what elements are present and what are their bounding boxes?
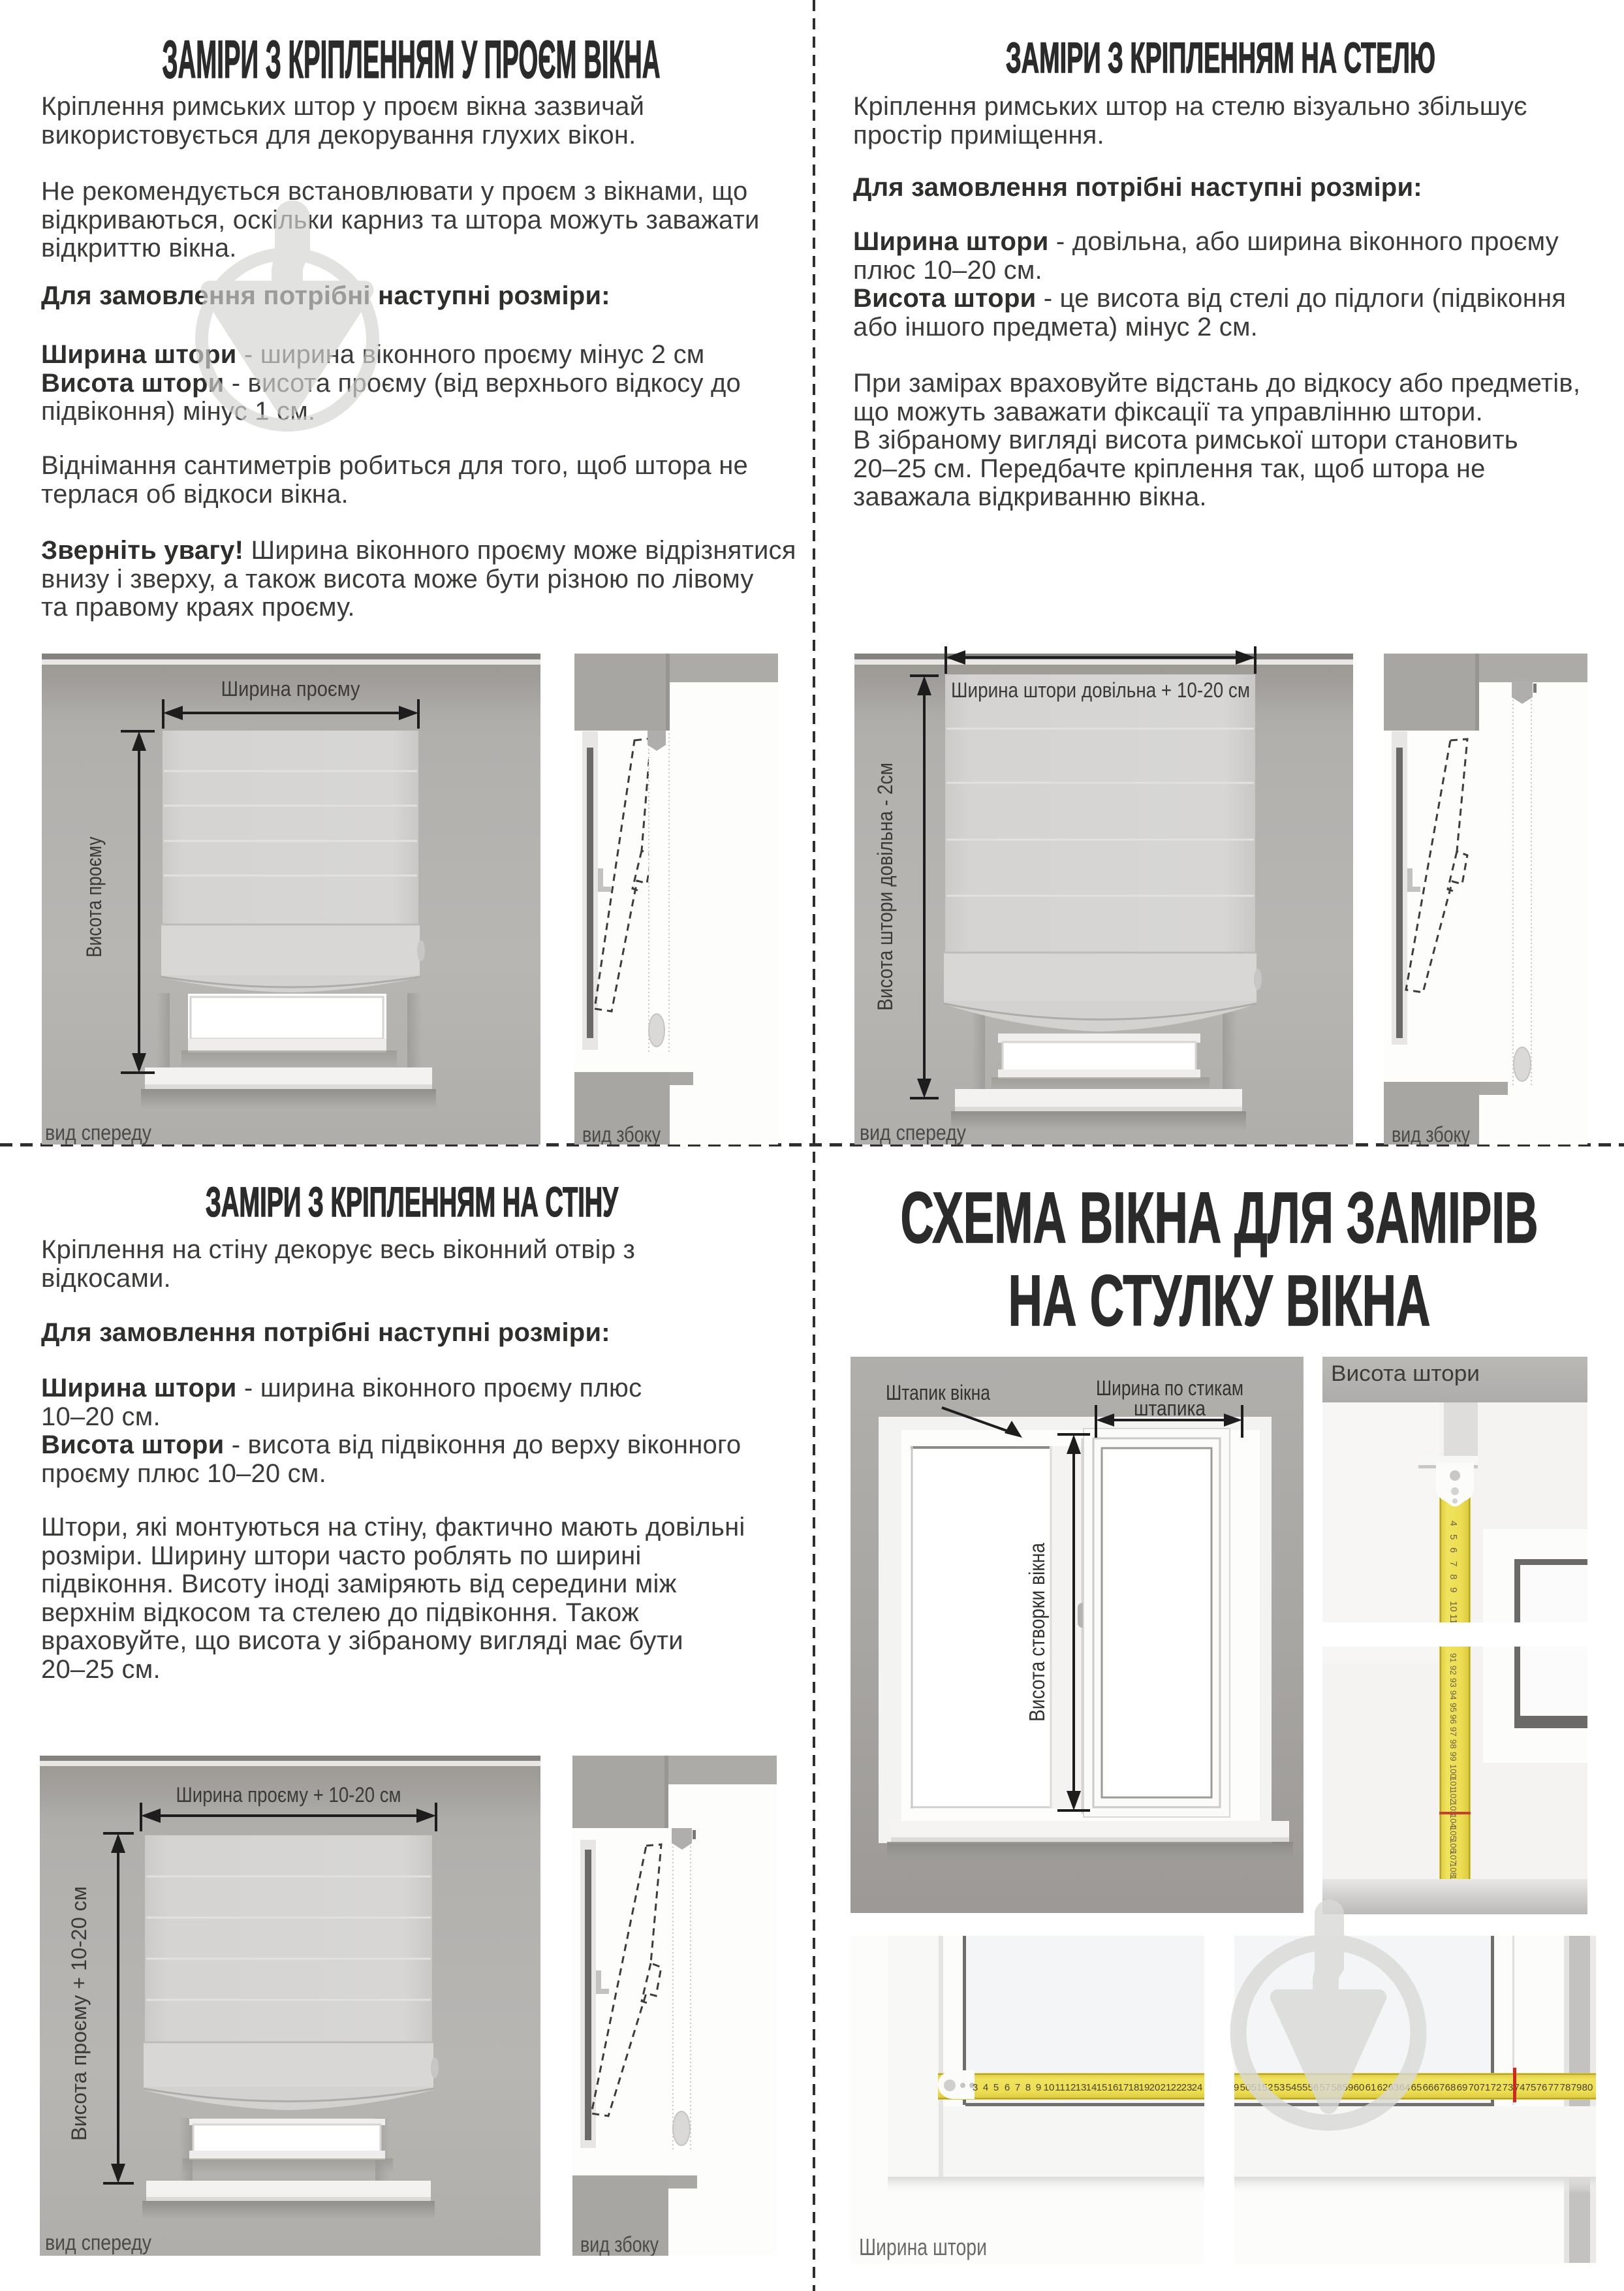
svg-text:15: 15 <box>1097 2082 1108 2093</box>
svg-text:14: 14 <box>1086 2082 1097 2093</box>
svg-text:10: 10 <box>1044 2082 1055 2093</box>
svg-text:8: 8 <box>1025 2082 1031 2093</box>
svg-text:4: 4 <box>1448 1521 1459 1526</box>
svg-text:5: 5 <box>1448 1534 1459 1540</box>
svg-text:5: 5 <box>993 2082 999 2093</box>
svg-text:Ширина штори довільна + 10-20: Ширина штори довільна + 10-20 см <box>951 678 1250 702</box>
svg-text:22: 22 <box>1171 2082 1182 2093</box>
svg-text:73: 73 <box>1503 2082 1514 2093</box>
svg-text:Висота проєму: Висота проєму <box>82 837 106 958</box>
svg-text:18: 18 <box>1129 2082 1140 2093</box>
svg-text:7: 7 <box>1448 1561 1459 1566</box>
svg-text:3: 3 <box>973 2082 978 2093</box>
svg-text:16: 16 <box>1108 2082 1119 2093</box>
svg-text:75: 75 <box>1525 2082 1537 2093</box>
svg-text:98: 98 <box>1448 1739 1458 1748</box>
svg-text:69: 69 <box>1457 2082 1468 2093</box>
svg-text:80: 80 <box>1582 2082 1593 2093</box>
svg-text:ЗАМІРИ З КРІПЛЕННЯМ НА СТЕЛЮ: ЗАМІРИ З КРІПЛЕННЯМ НА СТЕЛЮ <box>1006 38 1435 81</box>
svg-text:19: 19 <box>1139 2082 1150 2093</box>
svg-text:СХЕМА ВІКНА ДЛЯ ЗАМІРІВ: СХЕМА ВІКНА ДЛЯ ЗАМІРІВ <box>901 1180 1538 1258</box>
svg-text:вид спереду: вид спереду <box>45 2230 151 2254</box>
svg-text:17: 17 <box>1118 2082 1129 2093</box>
svg-text:Висота проєму + 10-20 см: Висота проєму + 10-20 см <box>67 1886 91 2141</box>
svg-text:78: 78 <box>1560 2082 1571 2093</box>
svg-text:97: 97 <box>1448 1727 1458 1736</box>
svg-text:Ширина проєму: Ширина проєму <box>221 677 360 701</box>
svg-text:вид спереду: вид спереду <box>860 1120 966 1145</box>
svg-text:91: 91 <box>1448 1653 1458 1662</box>
svg-text:72: 72 <box>1491 2082 1502 2093</box>
svg-text:7: 7 <box>1015 2082 1020 2093</box>
svg-text:23: 23 <box>1181 2082 1193 2093</box>
svg-text:67: 67 <box>1434 2082 1445 2093</box>
svg-text:Висота штори довільна - 2см: Висота штори довільна - 2см <box>873 763 897 1011</box>
svg-text:Ширина штори: Ширина штори <box>859 2234 987 2260</box>
svg-text:штапика: штапика <box>1134 1397 1206 1420</box>
svg-text:76: 76 <box>1537 2082 1548 2093</box>
svg-text:Висота створки вікна: Висота створки вікна <box>1025 1542 1049 1722</box>
svg-text:96: 96 <box>1448 1714 1458 1724</box>
svg-text:ЗАМІРИ З КРІПЛЕННЯМ НА СТІНУ: ЗАМІРИ З КРІПЛЕННЯМ НА СТІНУ <box>206 1183 619 1225</box>
svg-text:вид збоку: вид збоку <box>1392 1122 1470 1145</box>
svg-text:13: 13 <box>1076 2082 1087 2093</box>
svg-text:вид збоку: вид збоку <box>582 1122 661 1145</box>
svg-text:21: 21 <box>1161 2082 1172 2093</box>
svg-text:94: 94 <box>1448 1690 1458 1699</box>
svg-text:71: 71 <box>1480 2082 1491 2093</box>
svg-text:НА СТУЛКУ ВІКНА: НА СТУЛКУ ВІКНА <box>1008 1261 1431 1337</box>
svg-text:24: 24 <box>1192 2082 1203 2093</box>
svg-text:9: 9 <box>1036 2082 1041 2093</box>
svg-text:вид збоку: вид збоку <box>580 2232 659 2256</box>
svg-text:Штапик вікна: Штапик вікна <box>886 1381 990 1404</box>
svg-text:93: 93 <box>1448 1678 1458 1687</box>
svg-text:68: 68 <box>1445 2082 1456 2093</box>
svg-text:92: 92 <box>1448 1666 1458 1675</box>
svg-text:9: 9 <box>1448 1587 1459 1592</box>
svg-text:ЗАМІРИ З КРІПЛЕННЯМ У ПРОЄМ ВІ: ЗАМІРИ З КРІПЛЕННЯМ У ПРОЄМ ВІКНА <box>163 34 661 86</box>
svg-text:4: 4 <box>983 2082 988 2093</box>
svg-text:Ширина проєму + 10-20 см: Ширина проєму + 10-20 см <box>176 1783 401 1807</box>
svg-text:79: 79 <box>1571 2082 1582 2093</box>
svg-text:6: 6 <box>1448 1547 1459 1553</box>
svg-text:8: 8 <box>1448 1574 1459 1579</box>
svg-text:99: 99 <box>1448 1752 1458 1761</box>
svg-text:Висота штори: Висота штори <box>1331 1361 1480 1386</box>
svg-text:11: 11 <box>1055 2082 1065 2093</box>
svg-text:77: 77 <box>1548 2082 1559 2093</box>
svg-text:20: 20 <box>1149 2082 1161 2093</box>
svg-text:12: 12 <box>1065 2082 1076 2093</box>
svg-text:6: 6 <box>1005 2082 1010 2093</box>
svg-text:95: 95 <box>1448 1703 1458 1712</box>
svg-text:70: 70 <box>1469 2082 1480 2093</box>
svg-text:вид спереду: вид спереду <box>45 1120 151 1145</box>
svg-text:10: 10 <box>1448 1601 1459 1612</box>
